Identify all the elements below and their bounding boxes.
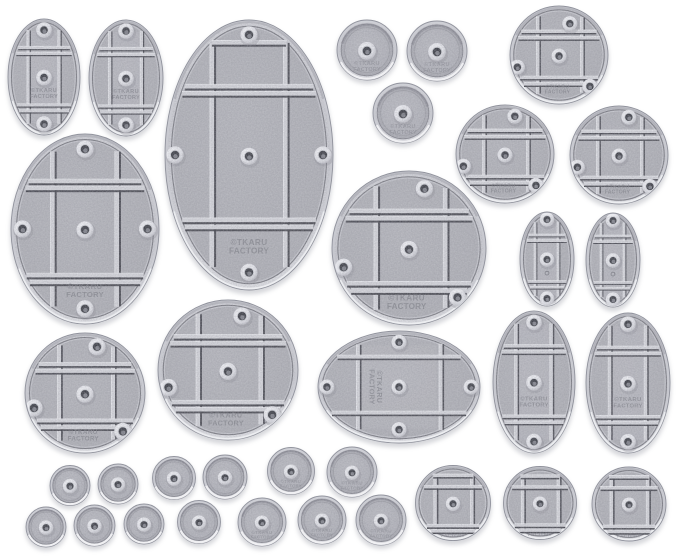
svg-text:FACTORY: FACTORY (30, 94, 58, 100)
svg-text:FACTORY: FACTORY (369, 533, 392, 538)
svg-text:FACTORY: FACTORY (617, 533, 641, 538)
svg-text:FACTORY: FACTORY (423, 68, 451, 74)
svg-text:FACTORY: FACTORY (605, 190, 631, 196)
svg-text:FACTORY: FACTORY (311, 533, 333, 538)
svg-text:FACTORY: FACTORY (387, 302, 427, 311)
svg-text:FACTORY: FACTORY (491, 189, 517, 195)
svg-text:FACTORY: FACTORY (229, 246, 269, 255)
svg-text:FACTORY: FACTORY (441, 533, 465, 538)
svg-text:©TKARU: ©TKARU (520, 396, 547, 403)
svg-text:FACTORY: FACTORY (66, 290, 104, 299)
svg-text:FACTORY: FACTORY (613, 403, 642, 409)
svg-text:FACTORY: FACTORY (353, 67, 381, 73)
svg-text:FACTORY: FACTORY (340, 485, 363, 490)
svg-text:FACTORY: FACTORY (251, 535, 273, 540)
svg-text:©TKARU: ©TKARU (614, 396, 641, 403)
svg-text:FACTORY: FACTORY (389, 130, 417, 136)
svg-text:FACTORY: FACTORY (112, 95, 140, 101)
svg-text:FACTORY: FACTORY (545, 90, 571, 96)
svg-text:FACTORY: FACTORY (280, 483, 302, 488)
svg-text:FACTORY: FACTORY (208, 418, 244, 427)
svg-text:FACTORY: FACTORY (528, 532, 552, 537)
svg-text:FACTORY: FACTORY (368, 369, 377, 404)
svg-text:FACTORY: FACTORY (68, 435, 100, 442)
svg-text:FACTORY: FACTORY (519, 403, 548, 409)
